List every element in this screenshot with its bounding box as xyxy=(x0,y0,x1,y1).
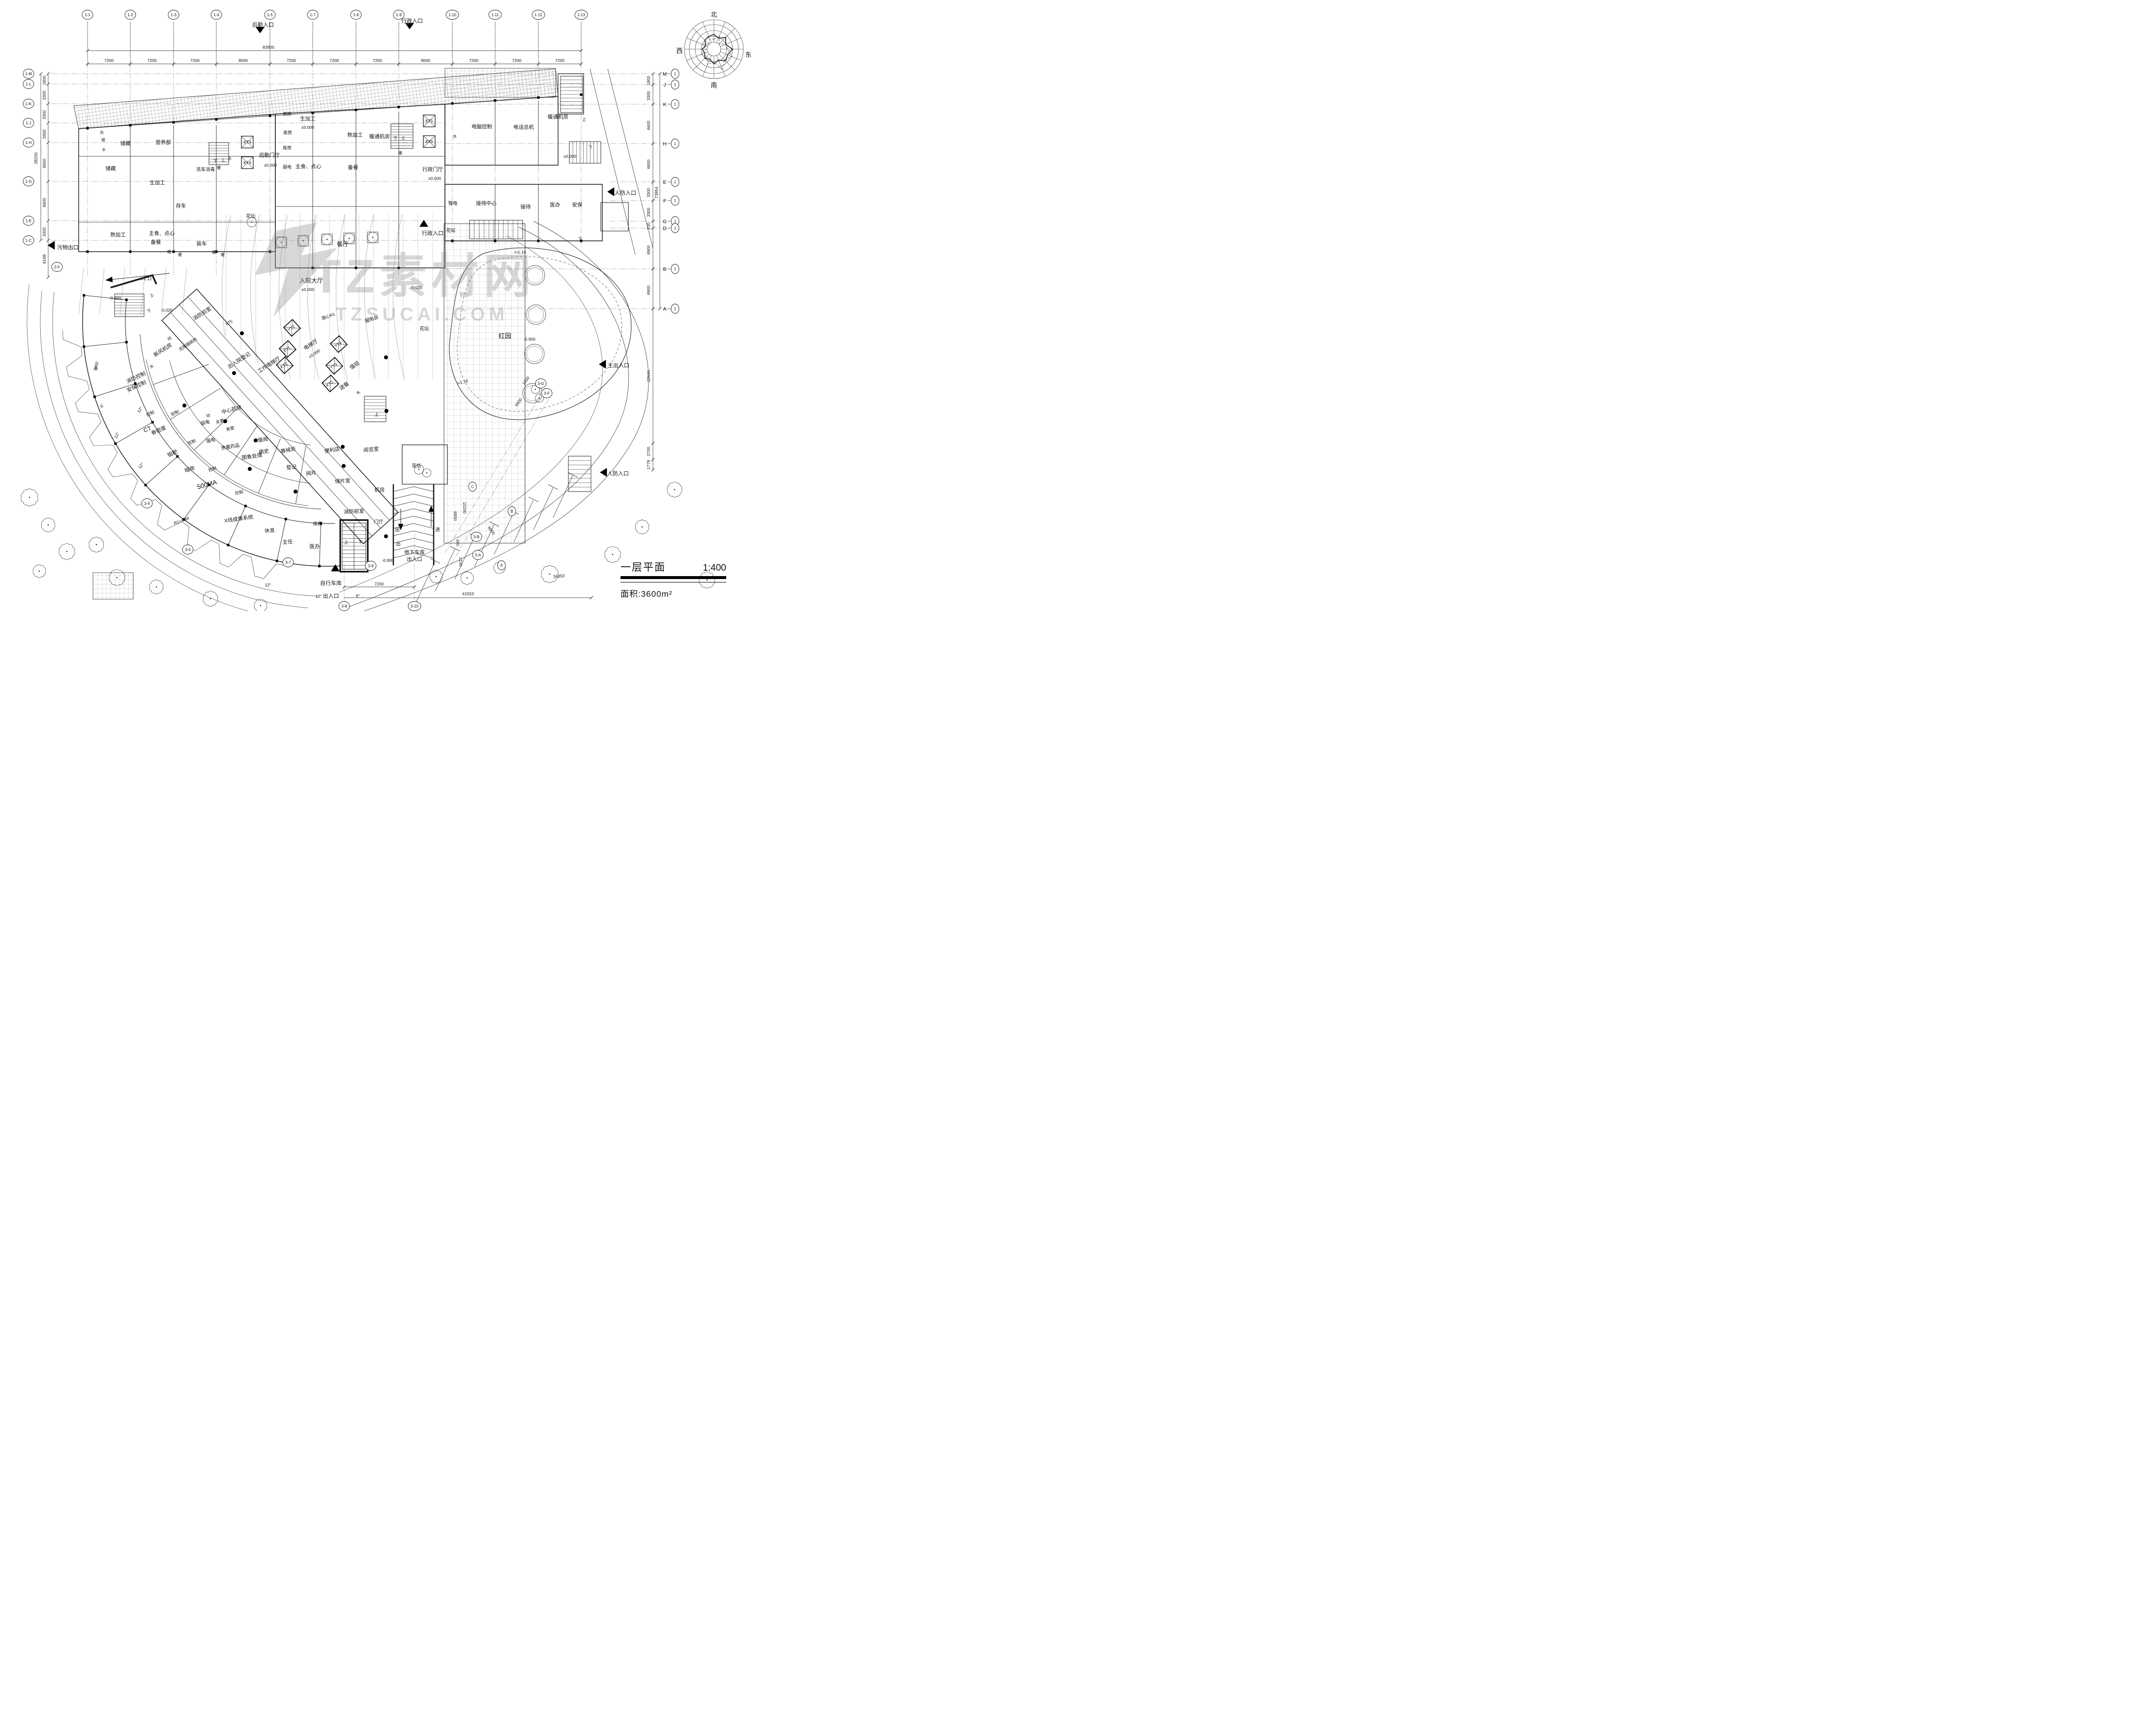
room-label: 动 xyxy=(166,335,172,342)
grid-bubble-label: 1 xyxy=(674,142,677,146)
dim-label: 6900 xyxy=(646,245,651,255)
entrance-arrow-icon xyxy=(405,23,414,29)
room-label: 花坛 xyxy=(419,326,429,332)
room-label: 主食、点心 xyxy=(295,163,322,170)
dim-label: 6600 xyxy=(646,159,651,169)
room-label: 强电 xyxy=(448,201,458,206)
compass-west: 西 xyxy=(676,47,682,55)
dim-label: 3300 xyxy=(42,110,47,119)
room-label: 出 xyxy=(395,526,400,533)
room-label: 备餐 xyxy=(151,239,161,245)
entrance-label: 人防入口 xyxy=(615,189,636,196)
room-label: YT3 xyxy=(329,362,338,370)
room-label: YT2 xyxy=(287,324,296,332)
grid-bubble-label: 1-10 xyxy=(448,13,457,17)
room-label: 控制 xyxy=(207,465,217,473)
grid-bubble-label: 3-4 xyxy=(144,501,150,506)
dim-label: 22646 xyxy=(646,370,651,382)
room-label: 暖 xyxy=(212,250,216,255)
room-label: 装车 xyxy=(197,240,207,247)
room-label: X线成像系统 xyxy=(224,514,254,524)
dim-label: 7200 xyxy=(287,58,296,63)
room-label: 地下车库 xyxy=(404,549,425,555)
dim-label: 3300 xyxy=(646,91,651,100)
grid-letter: G xyxy=(663,219,667,225)
room-label: 10200 xyxy=(462,502,467,514)
room-label: 电脑控制 xyxy=(472,123,492,130)
title-bar xyxy=(620,576,726,579)
room-label: 生加工 xyxy=(300,116,316,122)
room-label: 6800 xyxy=(453,512,458,521)
room-label: 储藏 xyxy=(120,140,131,146)
room-label: 图象处理 xyxy=(241,452,263,461)
grid-bubble-label: 3-F xyxy=(544,391,550,396)
grid-bubble-label: 1-3 xyxy=(171,13,177,17)
title-block: 一层平面 1:400 面积:3600m² xyxy=(620,559,726,599)
room-label: KT3 xyxy=(243,140,251,145)
room-label: 6° xyxy=(99,403,105,408)
drawing-area: 面积:3600m² xyxy=(620,587,726,599)
grid-bubble-label: 1-C xyxy=(26,238,32,243)
room-label: 水 xyxy=(148,363,154,370)
room-label: 水 xyxy=(102,147,106,152)
room-label: 暖通机房 xyxy=(369,133,390,140)
room-label: 库房 xyxy=(283,145,292,150)
room-label: -0.900 xyxy=(382,558,394,563)
room-label: 风 xyxy=(100,130,104,135)
grid-bubble-label: 1 xyxy=(674,226,677,231)
grid-bubble-label: 3-10 xyxy=(411,604,419,609)
grid-bubble-label: 1-4 xyxy=(213,13,219,17)
room-label: 控制 xyxy=(146,409,155,417)
entrance-label: 出入口 xyxy=(323,592,339,599)
room-label: 库房 xyxy=(283,130,292,135)
room-label: 贵重药品 xyxy=(221,442,240,451)
room-label: 机房 xyxy=(375,487,385,493)
grid-bubble-label: 3-B xyxy=(473,535,479,539)
room-label: 餐厅 xyxy=(337,240,349,248)
floor-plan-svg: 7200720072009000720072007200900072007200… xyxy=(0,0,768,611)
room-label: 下 xyxy=(589,145,593,150)
room-label: -0.900 xyxy=(524,337,535,342)
dim-label: 3300 xyxy=(646,188,651,197)
dim-label: 1779 xyxy=(646,460,651,469)
room-label: 表房 xyxy=(283,111,292,116)
room-label: ±0.000 xyxy=(428,176,441,181)
room-label: 花坛 xyxy=(446,228,456,233)
grid-bubble-label: 3-7 xyxy=(285,560,291,565)
room-label: 接待 xyxy=(521,203,532,210)
room-label: 接待中心 xyxy=(476,200,497,206)
room-label: 男更 xyxy=(226,425,235,432)
room-label: 电话总机 xyxy=(513,124,534,130)
room-label: 存车 xyxy=(176,203,186,209)
room-label: ±0.000 xyxy=(264,163,277,168)
room-label: 进 xyxy=(435,527,440,533)
grid-letter: D xyxy=(663,226,666,232)
dim-label: 7200 xyxy=(190,58,200,63)
room-label: 上 xyxy=(401,135,406,140)
room-label: 送餐 xyxy=(338,380,351,392)
entrance-arrow-icon xyxy=(331,564,340,571)
room-label: 12° xyxy=(113,432,120,439)
grid-letter: H xyxy=(663,142,666,147)
grid-bubble-label: 1-9 xyxy=(396,13,402,17)
grid-bubble-label: 1-1 xyxy=(85,13,90,17)
room-label: 储藏 xyxy=(106,165,116,172)
room-label: 上 xyxy=(582,117,587,122)
room-label: 上 xyxy=(344,540,349,545)
grid-letter: K xyxy=(663,102,667,108)
room-label: ±0.000 xyxy=(563,154,576,159)
grid-bubble-label: 1-7 xyxy=(310,13,316,17)
room-label: 水 xyxy=(453,134,457,139)
dim-label: 7200 xyxy=(512,58,522,63)
room-label: YT4 xyxy=(333,340,343,349)
dim-label: 3300 xyxy=(646,207,651,217)
room-label: 主任 xyxy=(282,538,293,545)
room-label: 弱电 xyxy=(200,419,210,427)
grid-bubble-label: 1-L xyxy=(26,82,31,87)
room-label: 水 xyxy=(355,389,361,396)
dim-total: 82800 xyxy=(263,45,274,50)
grid-bubble-label: 3-5 xyxy=(185,548,191,552)
dim-label: 7200 xyxy=(148,58,157,63)
room-label: 12° xyxy=(136,406,144,413)
room-label: 控制 xyxy=(235,489,244,495)
room-label: 控制 xyxy=(170,409,180,417)
room-label: 出 xyxy=(396,541,401,547)
compass-rose: 北南西东 xyxy=(676,11,751,89)
grid-letter: B xyxy=(663,267,667,272)
dim-label: 2700 xyxy=(646,447,651,456)
dim-label: 230 xyxy=(646,223,651,230)
room-label: 暖 xyxy=(217,166,221,170)
compass-east: 东 xyxy=(745,51,751,58)
room-label: 洗车消毒 xyxy=(196,167,215,173)
room-label: 41553 xyxy=(462,591,474,596)
room-label: 后勤门厅 xyxy=(259,152,280,158)
room-label: YT1 xyxy=(282,345,292,353)
compass-south: 南 xyxy=(710,82,717,89)
dim-label: 6600 xyxy=(42,159,47,168)
room-label: 上 xyxy=(375,412,379,417)
room-label: 库房 xyxy=(313,521,322,527)
grid-letter: J xyxy=(664,83,666,88)
room-label: 消防前室 xyxy=(192,305,212,322)
entrance-label: 污物出口 xyxy=(57,244,79,251)
grid-bubble-label: 3-G xyxy=(537,381,544,386)
grid-bubble-label: 1-M xyxy=(25,72,32,76)
grid-bubble-label: 1-12 xyxy=(534,13,543,17)
dim-label: 1800 xyxy=(646,76,651,85)
room-label: 7200 xyxy=(375,581,384,586)
room-label: 下 xyxy=(578,236,583,241)
room-label: KT2 xyxy=(325,379,334,388)
room-label: 行政门厅 xyxy=(422,166,443,173)
room-label: 水 xyxy=(228,156,232,161)
room-label: 下 xyxy=(146,308,152,314)
entrance-label: 行政入口 xyxy=(401,17,423,24)
room-label: 生加工 xyxy=(149,179,165,186)
dim-label: 7200 xyxy=(469,58,478,63)
room-label: 女更 xyxy=(215,418,225,425)
grid-bubble-label: 1 xyxy=(674,102,677,107)
room-label: 暖 xyxy=(221,253,225,257)
entrance-arrow-icon xyxy=(48,241,55,250)
grid-letter: F xyxy=(663,199,666,204)
room-label: 出入口 xyxy=(407,556,422,562)
room-label: i=1:12 xyxy=(140,276,152,281)
compass-north: 北 xyxy=(710,11,717,18)
room-label: 上 xyxy=(221,157,226,162)
dim-label: 1800 xyxy=(42,76,47,85)
grid-bubble-label: 1-H xyxy=(26,141,32,145)
entrance-label: 行政入口 xyxy=(422,230,443,236)
room-label: 红园 xyxy=(499,332,511,340)
room-label: 下 xyxy=(213,159,218,164)
grid-bubble-label: 1-5 xyxy=(267,13,273,17)
room-label: 暖 xyxy=(178,253,182,257)
grid-bubble-label: 1-8 xyxy=(353,13,359,17)
room-label: 骨密度 xyxy=(150,424,168,436)
room-label: 下 xyxy=(358,540,363,545)
drawing-sheet: 7200720072009000720072007200900072007200… xyxy=(0,0,768,611)
room-label: 3900 xyxy=(92,361,100,372)
room-label: 动 xyxy=(206,412,210,418)
dim-label: 6168 xyxy=(42,254,47,263)
grid-bubble-label: 1-13 xyxy=(577,13,586,17)
grid-bubble-label: 1 xyxy=(674,219,677,224)
room-label: ±0.000 xyxy=(308,348,321,359)
room-label: 34353 xyxy=(553,573,565,579)
dim-label: 7200 xyxy=(373,58,382,63)
grid-bubble-label: 1 xyxy=(674,199,677,203)
grid-bubble-label: 3-A xyxy=(475,553,481,557)
room-label: 暖 xyxy=(167,250,171,254)
grid-bubble-label: 1 xyxy=(674,180,677,184)
room-label: 休息 xyxy=(265,527,275,534)
grid-bubble-label: 1-E xyxy=(26,219,31,223)
room-label: R1=40M xyxy=(173,516,190,525)
room-label: 花坛 xyxy=(246,213,256,219)
entrance-arrow-icon xyxy=(256,27,265,33)
grid-bubble-label: A xyxy=(500,563,503,568)
room-label: 主食、点心 xyxy=(149,230,175,236)
dim-label: 9000 xyxy=(238,58,248,63)
room-label: 医办 xyxy=(550,202,561,208)
room-label: 便利店 xyxy=(324,445,340,454)
dim-label: 7200 xyxy=(555,58,564,63)
room-label: KT4 xyxy=(243,160,251,165)
grid-bubble-label: 1-G xyxy=(25,179,31,184)
room-label: -0.900 xyxy=(109,295,121,300)
grid-bubble-label: B xyxy=(510,509,513,514)
room-label: ±0.000 xyxy=(301,125,314,130)
room-label: 储片室 xyxy=(335,477,351,485)
grid-letter: E xyxy=(663,180,667,185)
room-label: 2100 xyxy=(458,557,463,567)
room-label: 等候处 xyxy=(280,445,297,455)
grid-letter: A xyxy=(663,307,667,312)
grid-bubble-label: 2-F xyxy=(54,265,60,269)
watermark-text: TZ素材网 xyxy=(312,250,535,303)
dim-label: 3300 xyxy=(42,90,47,100)
room-label: 暖 xyxy=(398,151,402,155)
grid-bubble-label: 1 xyxy=(674,267,677,271)
dim-label: 3300 xyxy=(42,227,47,236)
room-label: 阅片 xyxy=(306,469,317,477)
room-label: 借阅 xyxy=(257,436,268,443)
room-label: 暖通机房 xyxy=(548,114,568,120)
dim-label: 3300 xyxy=(42,129,47,139)
grid-bubble-label: C xyxy=(471,485,474,489)
dim-total: 28200 xyxy=(33,152,38,164)
dim-label: 6600 xyxy=(646,120,651,130)
dim-label: 7200 xyxy=(104,58,114,63)
room-label: 备餐 xyxy=(348,164,358,171)
drawing-title: 一层平面 xyxy=(620,559,666,574)
dim-label: 9000 xyxy=(421,58,430,63)
entrance-label: 自行车库 xyxy=(320,580,342,586)
room-label: KT5 xyxy=(425,118,433,123)
room-label: 12° xyxy=(137,462,145,469)
grid-bubble-label: 1 xyxy=(674,72,677,76)
entrance-label: 主出入口 xyxy=(608,362,629,369)
room-label: 熟加工 xyxy=(110,232,126,238)
room-label: 12° xyxy=(316,594,322,599)
title-rule xyxy=(620,582,726,582)
room-label: 登记 xyxy=(286,464,297,471)
room-label: 控制 xyxy=(187,438,197,446)
room-label: 花坛 xyxy=(412,463,421,469)
room-label: -0.020 xyxy=(161,308,173,313)
room-label: 医办 xyxy=(310,543,320,550)
grid-bubble-label: 1-K xyxy=(26,102,32,106)
room-label: YT5 xyxy=(224,319,234,327)
grid-bubble-label: 1-11 xyxy=(491,13,499,17)
room-label: KT6 xyxy=(425,139,433,144)
room-label: 熟加工 xyxy=(347,132,363,138)
entrance-arrow-icon xyxy=(600,468,607,477)
room-label: 门厅 xyxy=(374,519,384,525)
room-label: 营养部 xyxy=(155,139,171,145)
room-label: 烟 xyxy=(101,138,105,142)
grid-bubble-label: 3-8 xyxy=(341,604,347,609)
dim-label: 6900 xyxy=(646,286,651,295)
room-label: 消防前室 xyxy=(344,508,365,515)
room-label: 6° xyxy=(356,593,360,598)
drawing-scale: 1:400 xyxy=(703,563,726,574)
dim-total: 73954 xyxy=(654,187,659,199)
dim-label: 7200 xyxy=(330,58,339,63)
room-label: 安保 xyxy=(572,202,583,208)
grid-bubble-label: 1 xyxy=(674,83,677,87)
room-label: 弱电 xyxy=(283,164,292,170)
room-label: 下 xyxy=(393,136,398,141)
entrance-arrow-icon xyxy=(607,187,614,196)
room-label: KT1 xyxy=(279,361,289,370)
grid-bubble-label: 1-J xyxy=(26,121,31,125)
room-label: 圆心R1 xyxy=(321,312,336,321)
room-label: 新风机房 xyxy=(152,342,173,358)
grid-letter: M xyxy=(663,72,667,77)
room-label: 490 xyxy=(455,539,460,546)
watermark-text: TZSUCAI.COM xyxy=(335,304,508,325)
grid-bubble-label: 1 xyxy=(674,307,677,311)
grid-bubble-label: 3-9 xyxy=(368,564,374,568)
entrance-label: 人防入口 xyxy=(607,470,629,477)
grid-bubble-label: 1-2 xyxy=(127,13,133,17)
room-label: 阅览室 xyxy=(363,446,379,454)
room-label: 12° xyxy=(265,582,271,587)
dim-label: 6600 xyxy=(42,198,47,207)
room-label: 上 xyxy=(148,292,155,298)
